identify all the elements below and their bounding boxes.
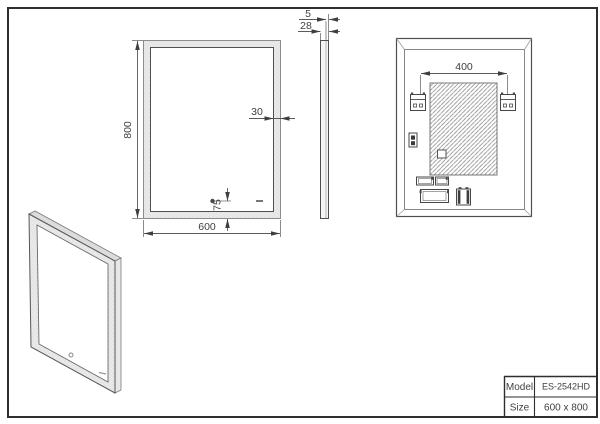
mounting-bracket-left [411,93,426,111]
drawing-sheet: 800 600 30 75 [0,0,600,424]
mirror-side-profile [321,41,329,219]
size-value: 600 x 800 [544,403,588,414]
switch-contact [411,141,415,145]
led-driver-box-2 [436,177,449,185]
title-block: Model ES-2542HD Size 600 x 800 [504,376,597,417]
dim-glass-thickness-label: 5 [305,8,311,20]
dim-front-height-label: 800 [122,121,134,139]
driver-inner [419,179,432,184]
driver-terminal [420,190,422,193]
dim-front-width: 600 [144,220,281,237]
back-view: 400 [397,39,532,217]
led-driver-box-3 [420,190,449,203]
dim-front-width-label: 600 [198,221,216,233]
mirror-side-face [115,258,121,393]
perspective-view [29,211,121,393]
dim-total-depth-label: 28 [300,20,312,32]
bracket-screw [501,93,503,95]
dim-frame-width-label: 30 [251,106,263,118]
bracket-screw [411,93,413,95]
junction-terminal [459,187,462,189]
bracket-body [411,95,426,111]
junction-terminal [465,187,468,189]
switch-contact [411,136,415,140]
bracket-hole [510,104,513,107]
bracket-hole [504,104,507,107]
model-label: Model [506,382,533,393]
model-value: ES-2542HD [542,382,591,392]
dim-front-height: 800 [122,41,143,219]
junction-box [457,187,471,205]
front-view: 800 600 30 75 [122,41,295,238]
bracket-hole [420,104,423,107]
mounting-bracket-right [501,93,516,111]
bracket-body [501,95,516,111]
junction-rail [458,190,461,204]
driver-inner [437,179,447,184]
driver-inner [423,192,446,201]
size-label: Size [510,403,530,414]
dim-total-depth: 28 [298,20,340,40]
heating-pad-cutout [438,150,447,158]
driver-terminal [447,190,449,193]
power-switch [409,133,417,147]
heating-pad-hatched-area [430,83,497,175]
technical-drawing-canvas: 800 600 30 75 [0,0,600,424]
driver-terminal [446,177,448,179]
side-view: 5 28 [298,8,340,219]
mirror-glass-area [151,48,274,212]
bracket-screw [513,93,515,95]
led-driver-box-1 [417,177,434,185]
dim-sensor-offset-label: 75 [212,199,224,211]
dim-bracket-spacing-label: 400 [455,61,473,73]
bracket-screw [423,93,425,95]
driver-terminal [431,177,433,179]
junction-rail [467,190,470,204]
bracket-hole [414,104,417,107]
